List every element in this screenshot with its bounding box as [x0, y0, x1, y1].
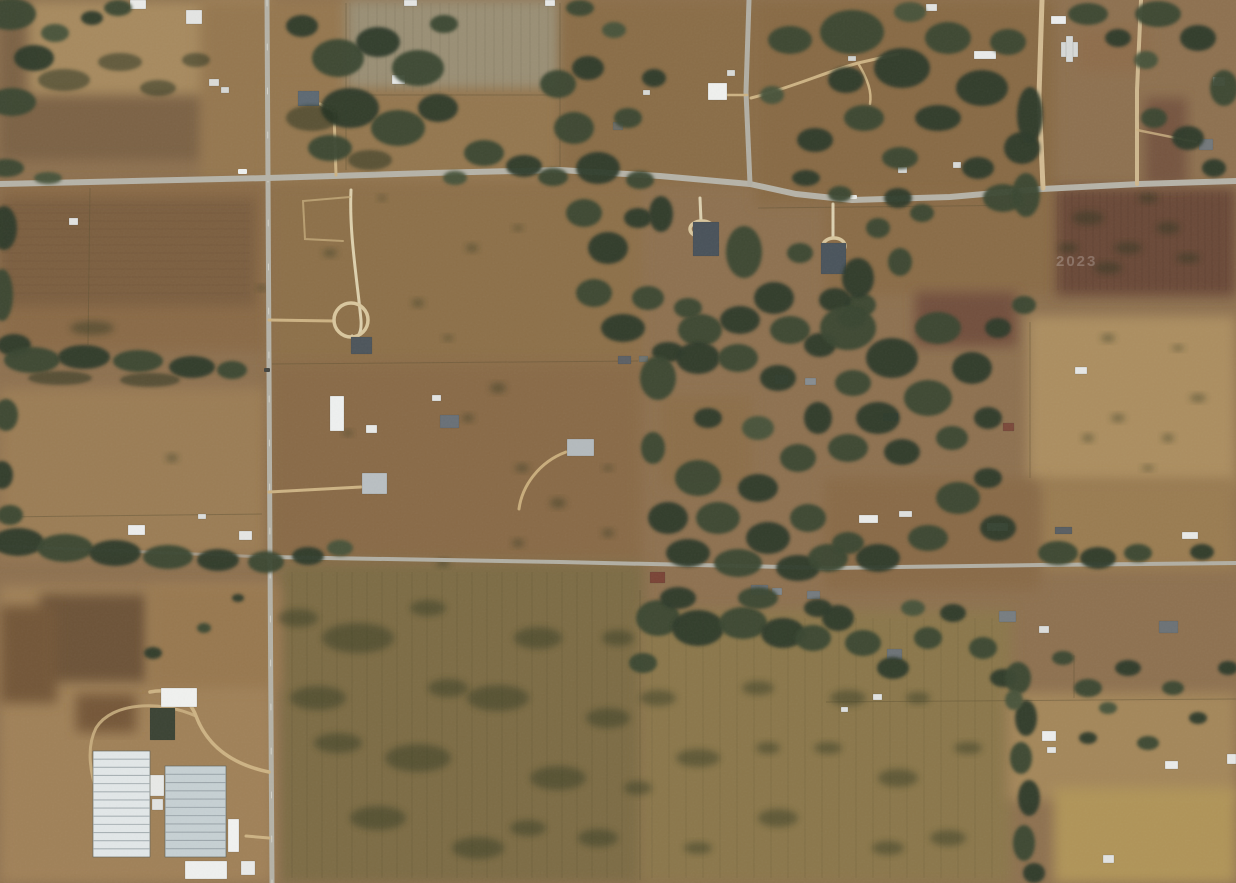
grain-overlay [0, 0, 1236, 883]
aerial-imagery-viewport: 2023 [0, 0, 1236, 883]
aerial-satellite-image: 2023 [0, 0, 1236, 883]
imagery-watermark-text: 2023 [1056, 253, 1097, 270]
